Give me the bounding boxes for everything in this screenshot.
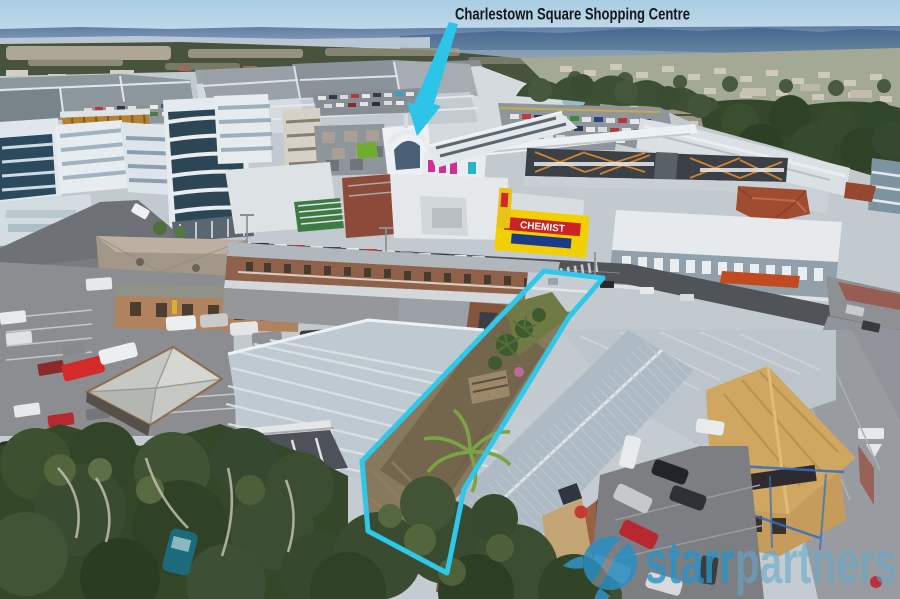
svg-text:starr: starr [645,529,735,596]
svg-text:Charlestown Square Shopping Ce: Charlestown Square Shopping Centre [455,5,690,24]
svg-text:partners: partners [735,529,897,596]
